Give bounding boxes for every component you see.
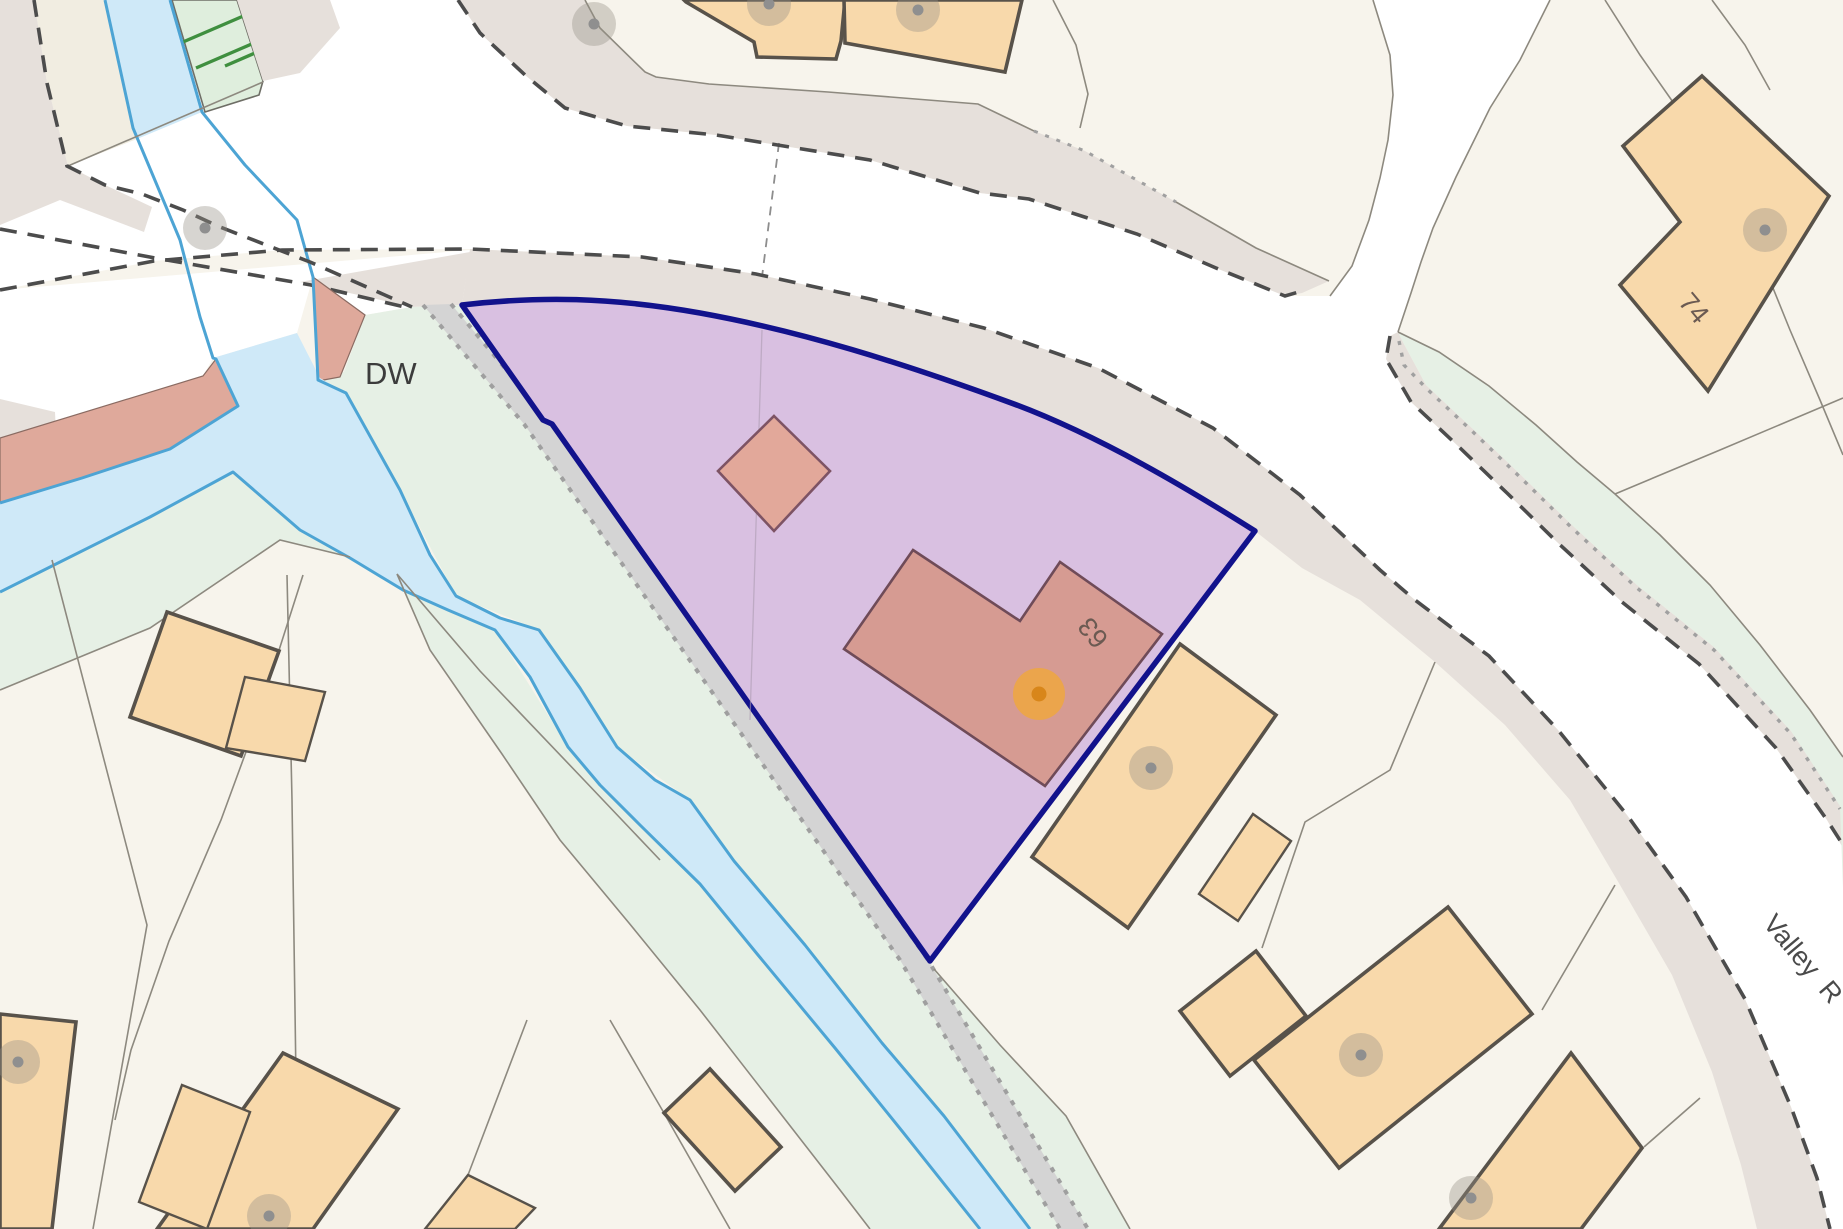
svg-text:DW: DW — [365, 356, 417, 391]
